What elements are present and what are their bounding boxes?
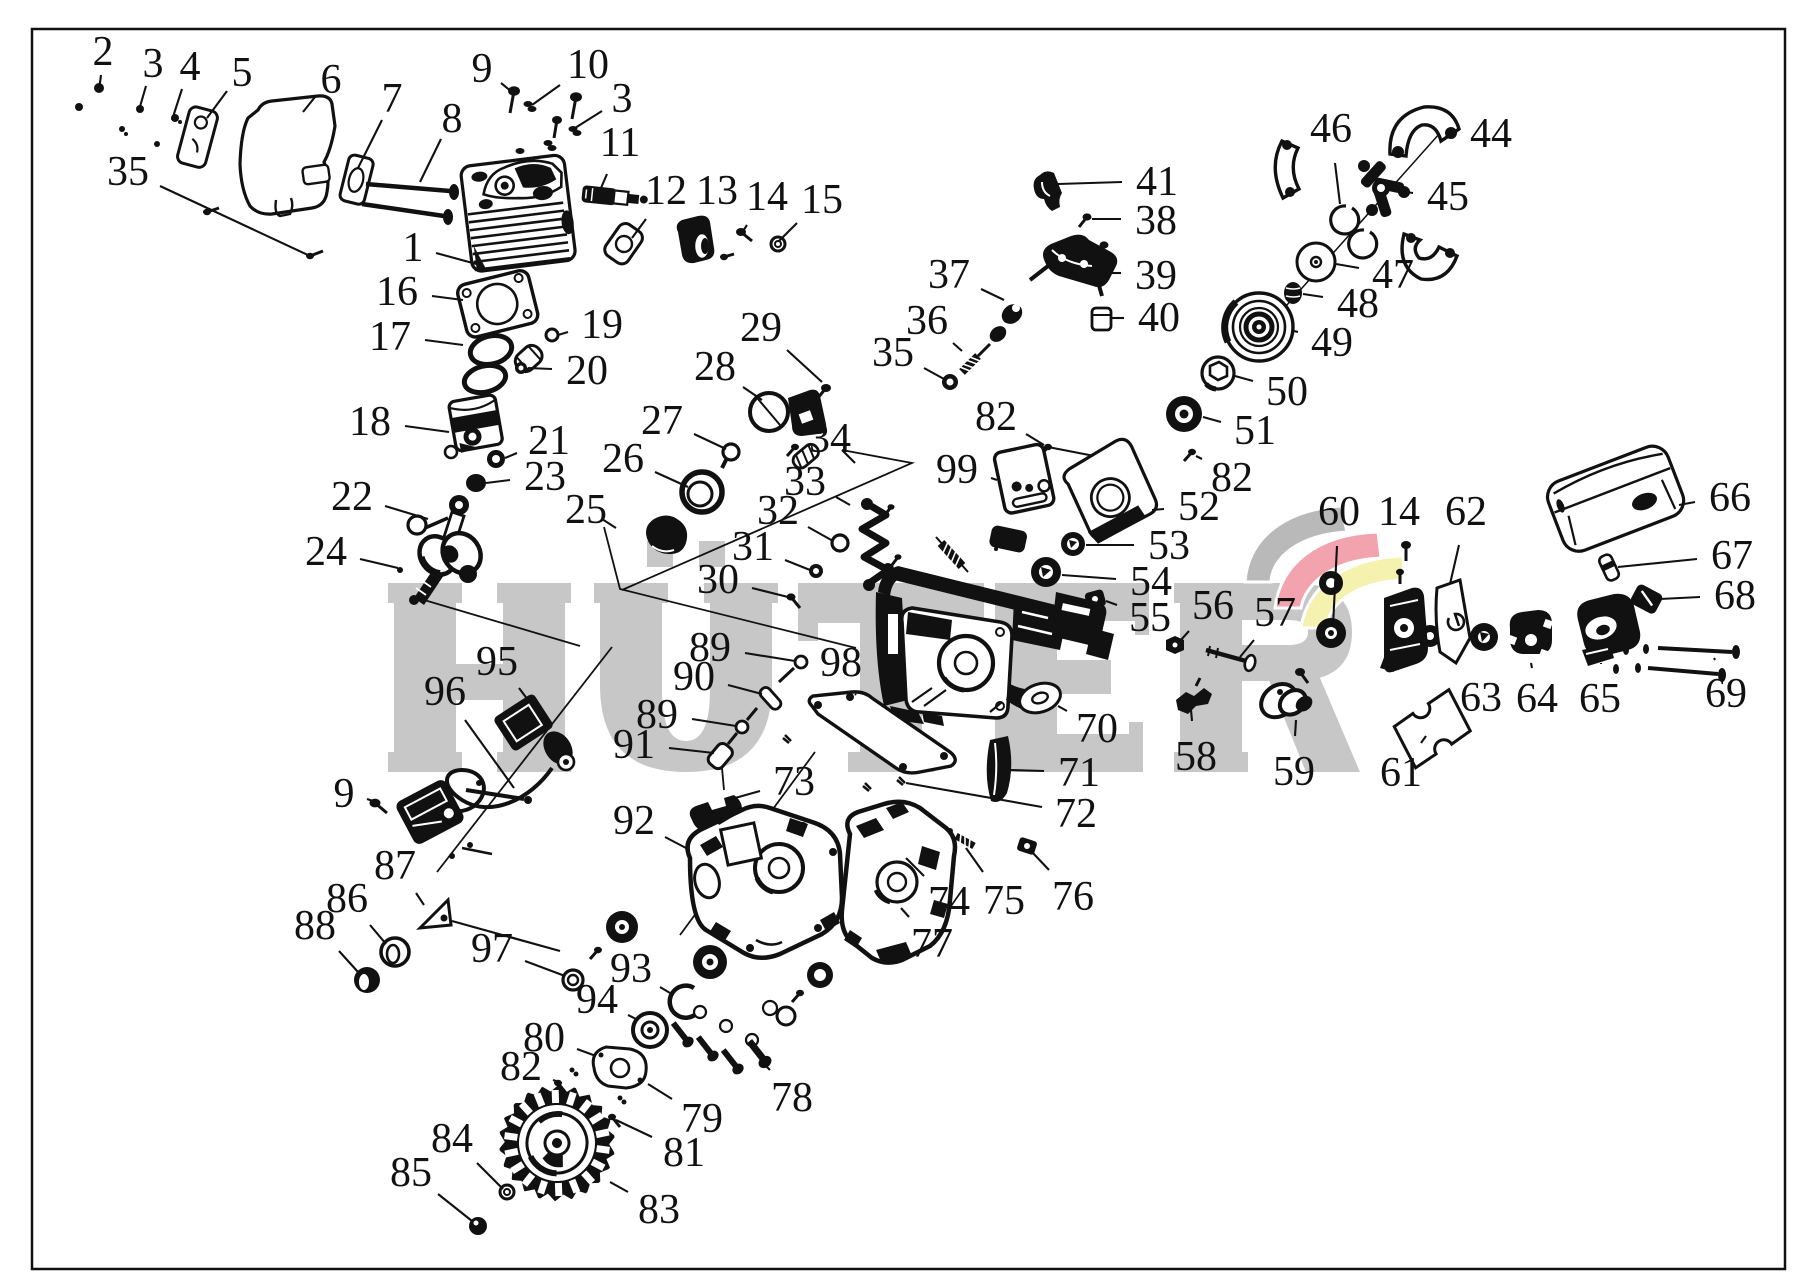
svg-text:11: 11: [600, 120, 640, 166]
svg-text:97: 97: [471, 926, 513, 972]
svg-text:82: 82: [975, 394, 1017, 440]
svg-text:76: 76: [1052, 874, 1094, 920]
svg-text:14: 14: [1378, 489, 1420, 535]
svg-text:70: 70: [1076, 706, 1118, 752]
svg-text:55: 55: [1129, 595, 1171, 641]
svg-text:13: 13: [696, 168, 738, 214]
svg-text:87: 87: [374, 843, 416, 889]
svg-text:61: 61: [1380, 750, 1422, 796]
svg-text:83: 83: [638, 1187, 680, 1233]
svg-text:35: 35: [107, 149, 149, 195]
svg-text:78: 78: [771, 1075, 813, 1121]
svg-text:56: 56: [1192, 583, 1234, 629]
svg-text:16: 16: [376, 269, 418, 315]
svg-text:68: 68: [1714, 573, 1756, 619]
svg-text:26: 26: [602, 436, 644, 482]
svg-text:5: 5: [232, 50, 253, 96]
svg-text:36: 36: [906, 298, 948, 344]
svg-text:34: 34: [809, 416, 851, 462]
svg-text:96: 96: [424, 669, 466, 715]
svg-text:51: 51: [1234, 408, 1276, 454]
svg-text:73: 73: [773, 759, 815, 805]
svg-text:69: 69: [1705, 671, 1747, 717]
svg-text:60: 60: [1318, 489, 1360, 535]
svg-text:3: 3: [612, 76, 633, 122]
svg-text:19: 19: [581, 302, 623, 348]
svg-text:92: 92: [613, 798, 655, 844]
svg-text:63: 63: [1460, 675, 1502, 721]
svg-text:4: 4: [180, 44, 201, 90]
svg-text:75: 75: [983, 878, 1025, 924]
svg-text:59: 59: [1273, 749, 1315, 795]
svg-text:20: 20: [566, 348, 608, 394]
svg-text:22: 22: [331, 474, 373, 520]
svg-text:64: 64: [1516, 676, 1558, 722]
svg-text:62: 62: [1445, 489, 1487, 535]
svg-text:24: 24: [305, 529, 347, 575]
svg-text:30: 30: [697, 557, 739, 603]
svg-text:71: 71: [1058, 750, 1100, 796]
svg-text:1: 1: [403, 225, 424, 271]
svg-text:9: 9: [334, 771, 355, 817]
svg-text:84: 84: [431, 1116, 473, 1162]
svg-text:25: 25: [565, 487, 607, 533]
svg-text:17: 17: [369, 314, 411, 360]
svg-text:28: 28: [694, 344, 736, 390]
svg-text:3: 3: [143, 41, 164, 87]
svg-text:15: 15: [801, 177, 843, 223]
svg-text:12: 12: [645, 168, 687, 214]
svg-text:77: 77: [911, 921, 953, 967]
svg-text:9: 9: [472, 46, 493, 92]
svg-text:66: 66: [1709, 475, 1751, 521]
svg-text:29: 29: [740, 305, 782, 351]
svg-text:7: 7: [382, 76, 403, 122]
svg-text:88: 88: [294, 903, 336, 949]
svg-text:8: 8: [442, 96, 463, 142]
svg-text:27: 27: [641, 398, 683, 444]
svg-text:57: 57: [1254, 590, 1296, 636]
svg-text:45: 45: [1427, 174, 1469, 220]
svg-text:74: 74: [928, 879, 970, 925]
svg-text:58: 58: [1175, 734, 1217, 780]
svg-text:10: 10: [567, 42, 609, 88]
svg-text:40: 40: [1138, 295, 1180, 341]
svg-text:37: 37: [928, 252, 970, 298]
svg-text:18: 18: [349, 399, 391, 445]
svg-text:2: 2: [93, 29, 114, 75]
svg-text:81: 81: [663, 1130, 705, 1176]
svg-text:38: 38: [1135, 198, 1177, 244]
svg-text:99: 99: [936, 447, 978, 493]
svg-text:85: 85: [390, 1150, 432, 1196]
svg-text:90: 90: [673, 654, 715, 700]
svg-text:65: 65: [1579, 676, 1621, 722]
svg-text:49: 49: [1311, 320, 1353, 366]
svg-text:46: 46: [1310, 106, 1352, 152]
svg-text:14: 14: [746, 174, 788, 220]
svg-text:44: 44: [1470, 111, 1512, 157]
svg-text:72: 72: [1055, 791, 1097, 837]
svg-text:98: 98: [820, 640, 862, 686]
svg-text:82: 82: [500, 1044, 542, 1090]
svg-text:91: 91: [613, 722, 655, 768]
svg-text:6: 6: [321, 57, 342, 103]
svg-text:39: 39: [1135, 253, 1177, 299]
svg-text:95: 95: [476, 639, 518, 685]
svg-text:23: 23: [524, 454, 566, 500]
svg-text:94: 94: [576, 977, 618, 1023]
